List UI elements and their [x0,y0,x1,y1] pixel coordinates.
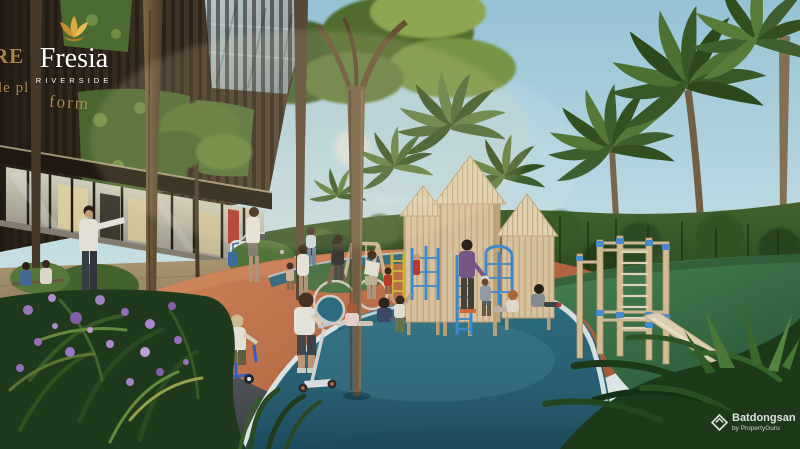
project-logo-title: Fresia [30,45,118,73]
project-logo: Fresia RIVERSIDE [30,14,118,85]
watermark-center-name: Batdongsan [376,192,451,207]
project-logo-subtitle: RIVERSIDE [30,76,118,85]
watermark-bottom-right: Batdongsan by PropertyGuru [711,413,796,432]
facade-sign-fragment-re: RE [0,44,24,69]
batdongsan-logo-icon [360,194,372,206]
watermark-center: Batdongsan [360,192,451,207]
facade-sign-fragment-lepl: le pl [0,80,29,97]
watermark-name: Batdongsan [732,413,796,424]
render-image: RE le pl form Fresia RIVERSIDE Batdongsa… [0,0,800,449]
sunlight-overlay [0,0,800,449]
batdongsan-logo-icon [711,414,728,431]
watermark-byline: by PropertyGuru [732,425,796,432]
flower-logo-icon [54,14,94,44]
facade-sign-fragment-form: form [48,92,90,115]
